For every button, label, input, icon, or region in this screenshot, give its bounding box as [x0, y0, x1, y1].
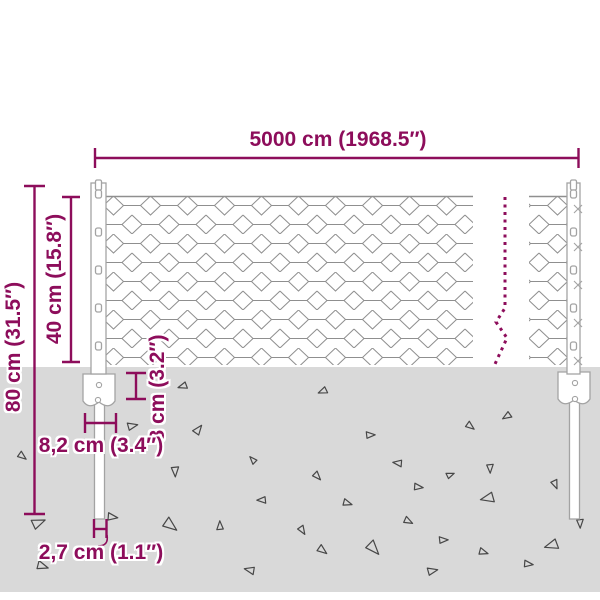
right-post-buried-shaft [570, 399, 580, 519]
wire-staple [571, 228, 577, 236]
right-anchor-plate-hole-bottom [572, 396, 577, 401]
wire-staple [571, 304, 577, 312]
left-post-top-clip [96, 180, 102, 190]
left-anchor-plate-hole-bottom [95, 397, 100, 402]
right-anchor-plate-hole-top [572, 380, 577, 385]
diagram-linework [0, 0, 600, 600]
left-post-buried-shaft [95, 400, 105, 519]
wire-staple [96, 228, 102, 236]
anchor-height-label: 8 cm (3.2″) [146, 335, 170, 442]
fence-height-label: 40 cm (15.8″) [43, 214, 67, 344]
total-height-label: 80 cm (31.5″) [2, 282, 26, 412]
wire-staple [571, 342, 577, 350]
wire-staple [96, 266, 102, 274]
wire-staple [96, 342, 102, 350]
fence-dimension-diagram: 5000 cm (1968.5″) 80 cm (31.5″) 40 cm (1… [0, 0, 600, 600]
right-post-top-clip [571, 180, 577, 190]
post-diameter-label: 2,7 cm (1.1″) [39, 541, 163, 565]
length-break-line [495, 197, 507, 364]
anchor-width-label: 8,2 cm (3.4″) [39, 434, 163, 458]
wire-staple [96, 190, 102, 198]
wire-staple [571, 266, 577, 274]
total-length-label: 5000 cm (1968.5″) [249, 128, 426, 152]
wire-staple [571, 190, 577, 198]
wire-staple [96, 304, 102, 312]
left-anchor-plate-hole-top [96, 382, 101, 387]
